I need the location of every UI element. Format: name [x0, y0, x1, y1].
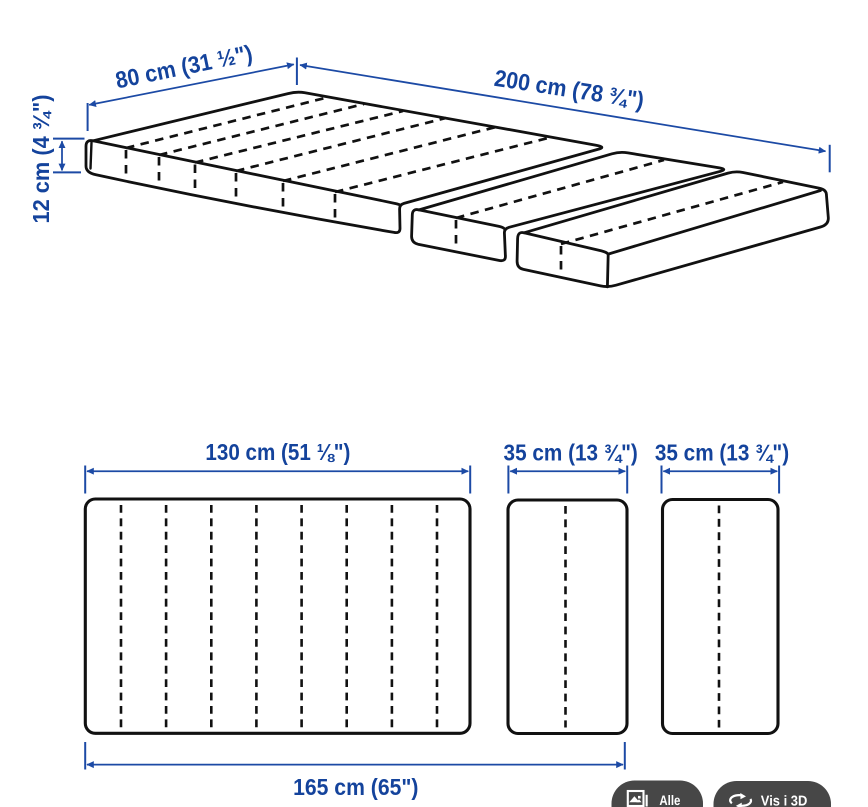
svg-text:200 cm (78 ¾"): 200 cm (78 ¾") — [493, 65, 646, 114]
svg-text:165 cm (65"): 165 cm (65") — [293, 774, 418, 800]
svg-text:35 cm (13 ¾"): 35 cm (13 ¾") — [655, 439, 789, 465]
svg-text:Alle: Alle — [659, 793, 680, 807]
svg-text:130 cm (51 ⅛"): 130 cm (51 ⅛") — [205, 439, 350, 465]
svg-text:35 cm (13 ¾"): 35 cm (13 ¾") — [504, 439, 638, 465]
svg-text:Vis i 3D: Vis i 3D — [761, 794, 808, 807]
svg-text:12 cm (4 ¾"): 12 cm (4 ¾") — [28, 95, 54, 224]
